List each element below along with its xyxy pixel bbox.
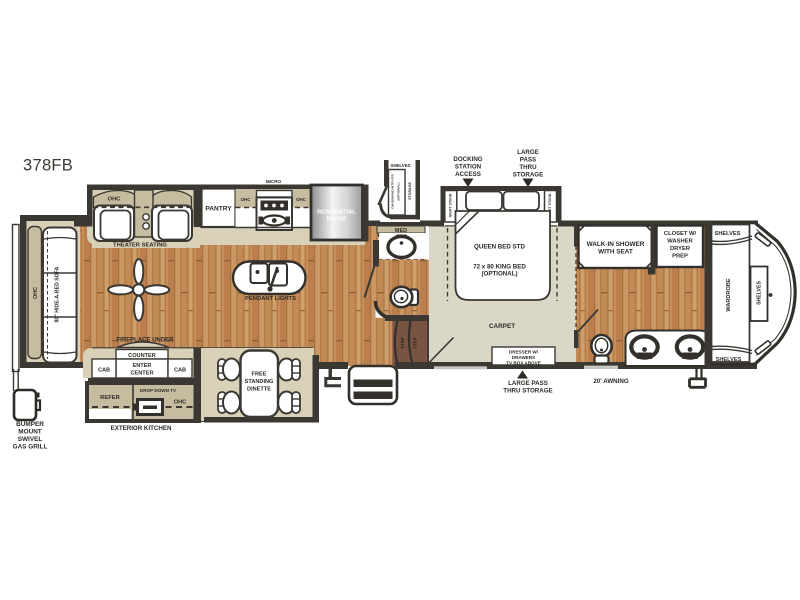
svg-text:NIGHT STAND: NIGHT STAND (448, 193, 452, 217)
svg-text:SHELVES: SHELVES (716, 357, 742, 363)
svg-text:(OPTIONAL): (OPTIONAL) (481, 270, 517, 277)
svg-text:OHC: OHC (241, 197, 252, 202)
svg-text:20' AWNING: 20' AWNING (593, 378, 628, 385)
svg-text:ENTER: ENTER (133, 363, 152, 369)
svg-text:CARPET: CARPET (489, 323, 515, 330)
svg-text:(OPTIONAL): (OPTIONAL) (397, 182, 401, 200)
svg-text:PENDANT LIGHTS: PENDANT LIGHTS (245, 296, 296, 302)
svg-text:SHELVES: SHELVES (757, 281, 763, 305)
svg-text:LARGE: LARGE (517, 149, 539, 156)
svg-text:OHC: OHC (33, 287, 39, 299)
svg-text:CAB: CAB (98, 368, 110, 374)
svg-text:DRYER: DRYER (670, 246, 691, 252)
svg-text:DOCKING: DOCKING (453, 156, 482, 163)
svg-text:STEP: STEP (400, 337, 405, 349)
svg-text:PASS: PASS (520, 157, 536, 164)
svg-text:SHELVES: SHELVES (715, 231, 741, 237)
svg-text:COUNTER: COUNTER (128, 353, 156, 359)
svg-text:WARDROBE: WARDROBE (726, 278, 732, 312)
svg-text:SWIVEL: SWIVEL (18, 436, 43, 443)
svg-text:FREE: FREE (252, 372, 267, 378)
svg-text:STANDING: STANDING (245, 379, 274, 385)
svg-text:80" HIDE-A-BED SOFA: 80" HIDE-A-BED SOFA (55, 266, 61, 322)
svg-text:THRU: THRU (519, 164, 537, 171)
svg-text:FIREPLACE UNDER: FIREPLACE UNDER (116, 338, 174, 344)
svg-text:MOUNT: MOUNT (18, 429, 42, 436)
svg-text:DRAWERS: DRAWERS (512, 355, 535, 360)
svg-text:CAB: CAB (174, 368, 186, 374)
svg-text:DRESSER W/: DRESSER W/ (509, 350, 539, 355)
svg-text:EXTERIOR KITCHEN: EXTERIOR KITCHEN (111, 425, 172, 432)
svg-text:REFER: REFER (327, 217, 347, 223)
svg-text:378FB: 378FB (23, 157, 73, 175)
svg-text:CENTER: CENTER (131, 371, 154, 377)
svg-text:DROP DOWN TV: DROP DOWN TV (140, 388, 177, 393)
svg-text:WALK-IN SHOWER: WALK-IN SHOWER (587, 241, 645, 248)
svg-text:STORAGE: STORAGE (408, 182, 412, 200)
svg-text:PREP: PREP (672, 254, 688, 260)
svg-text:BUMPER: BUMPER (16, 421, 44, 428)
svg-text:QUEEN BED STD: QUEEN BED STD (474, 244, 525, 251)
svg-text:ON-DEMAND WTR HTR: ON-DEMAND WTR HTR (391, 174, 395, 209)
svg-text:OHC: OHC (296, 197, 307, 202)
svg-text:RESIDENTIAL: RESIDENTIAL (317, 210, 356, 216)
svg-text:PANTRY: PANTRY (205, 206, 232, 213)
svg-text:STATION: STATION (455, 164, 482, 171)
svg-text:ACCESS: ACCESS (455, 171, 481, 178)
svg-text:REFER: REFER (100, 395, 120, 401)
svg-text:LARGE PASS: LARGE PASS (508, 380, 548, 387)
svg-text:STEP: STEP (413, 337, 418, 349)
svg-text:STORAGE: STORAGE (513, 172, 543, 179)
svg-text:CLOSET W/: CLOSET W/ (664, 231, 697, 237)
svg-text:SHELVES: SHELVES (390, 163, 410, 168)
svg-text:72 x 80 KING BED: 72 x 80 KING BED (473, 263, 526, 270)
svg-text:MICRO: MICRO (266, 179, 282, 184)
svg-text:THRU STORAGE: THRU STORAGE (503, 388, 552, 395)
svg-text:WASHER: WASHER (667, 239, 693, 245)
svg-text:TV BOX ABOVE: TV BOX ABOVE (506, 361, 541, 366)
svg-text:DINETTE: DINETTE (247, 387, 271, 393)
svg-text:THEATER SEATING: THEATER SEATING (113, 243, 167, 249)
svg-text:OHC: OHC (108, 197, 120, 203)
svg-text:OHC: OHC (174, 400, 186, 406)
svg-text:GAS GRILL: GAS GRILL (13, 444, 48, 451)
svg-text:WITH SEAT: WITH SEAT (598, 249, 633, 256)
